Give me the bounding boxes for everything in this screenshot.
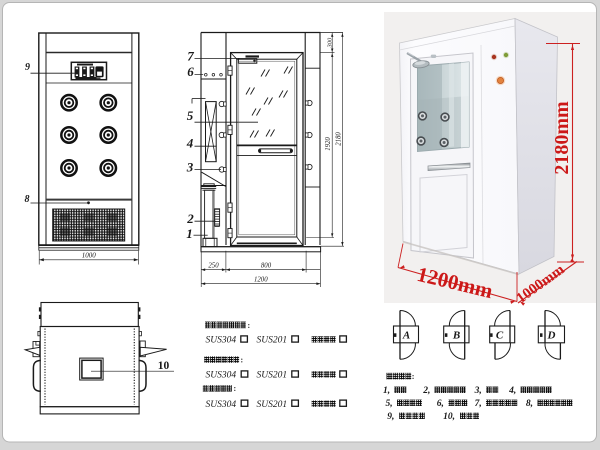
- svg-text:SUS304: SUS304: [206, 371, 237, 381]
- svg-text:9,: 9,: [387, 412, 394, 422]
- svg-text:250: 250: [208, 262, 219, 269]
- svg-text:300: 300: [326, 37, 333, 49]
- svg-text:C: C: [496, 329, 504, 341]
- svg-text:1: 1: [186, 226, 193, 241]
- svg-text::: :: [234, 384, 237, 393]
- svg-text:1,: 1,: [383, 386, 390, 396]
- svg-text:1200: 1200: [254, 276, 268, 283]
- svg-text:5: 5: [187, 108, 194, 123]
- svg-text:4: 4: [186, 136, 194, 151]
- svg-text:6: 6: [187, 64, 194, 79]
- svg-text:D: D: [547, 329, 556, 341]
- svg-text:8,: 8,: [526, 399, 533, 409]
- svg-text:A: A: [402, 329, 410, 341]
- svg-text:7,: 7,: [475, 399, 482, 409]
- svg-text:SUS304: SUS304: [206, 400, 237, 410]
- svg-text:10: 10: [158, 360, 170, 372]
- svg-text::: :: [241, 355, 244, 364]
- svg-text:SUS304: SUS304: [206, 336, 237, 346]
- svg-text:10,: 10,: [443, 412, 455, 422]
- svg-text:4,: 4,: [508, 386, 516, 396]
- svg-text:2180: 2180: [335, 132, 342, 146]
- svg-text:2: 2: [186, 211, 194, 226]
- svg-text:SUS201: SUS201: [257, 400, 288, 410]
- svg-text:3,: 3,: [474, 386, 482, 396]
- svg-text::: :: [248, 321, 251, 330]
- svg-text:9: 9: [25, 62, 30, 73]
- svg-text:6,: 6,: [437, 399, 444, 409]
- svg-text:3: 3: [186, 160, 194, 175]
- svg-text:2,: 2,: [422, 386, 430, 396]
- svg-text:800: 800: [261, 262, 272, 269]
- svg-text:8: 8: [25, 194, 30, 205]
- svg-text:B: B: [452, 329, 460, 341]
- svg-text::: :: [412, 372, 415, 381]
- svg-text:1920: 1920: [325, 137, 332, 151]
- svg-text:SUS201: SUS201: [257, 336, 288, 346]
- svg-text:1000: 1000: [82, 251, 97, 259]
- svg-text:5,: 5,: [386, 399, 393, 409]
- svg-text:2180mm: 2180mm: [551, 101, 573, 175]
- svg-text:SUS201: SUS201: [257, 371, 288, 381]
- svg-text:7: 7: [187, 48, 194, 63]
